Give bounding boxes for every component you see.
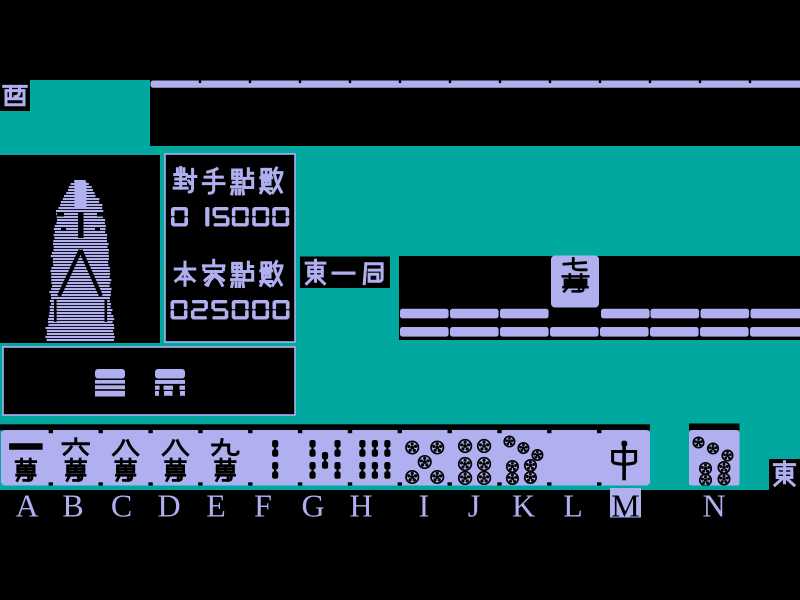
svg-text:F: F <box>254 488 272 524</box>
svg-text:G: G <box>301 488 324 524</box>
svg-text:N: N <box>702 488 725 524</box>
svg-text:A: A <box>15 488 38 524</box>
svg-text:M: M <box>611 488 639 524</box>
svg-text:B: B <box>62 488 83 524</box>
svg-text:I: I <box>419 488 430 524</box>
svg-text:D: D <box>157 488 180 524</box>
svg-text:H: H <box>349 488 372 524</box>
svg-text:C: C <box>111 488 132 524</box>
svg-text:L: L <box>563 488 583 524</box>
svg-text:E: E <box>206 488 226 524</box>
svg-text:K: K <box>512 488 535 524</box>
svg-text:J: J <box>468 488 480 524</box>
